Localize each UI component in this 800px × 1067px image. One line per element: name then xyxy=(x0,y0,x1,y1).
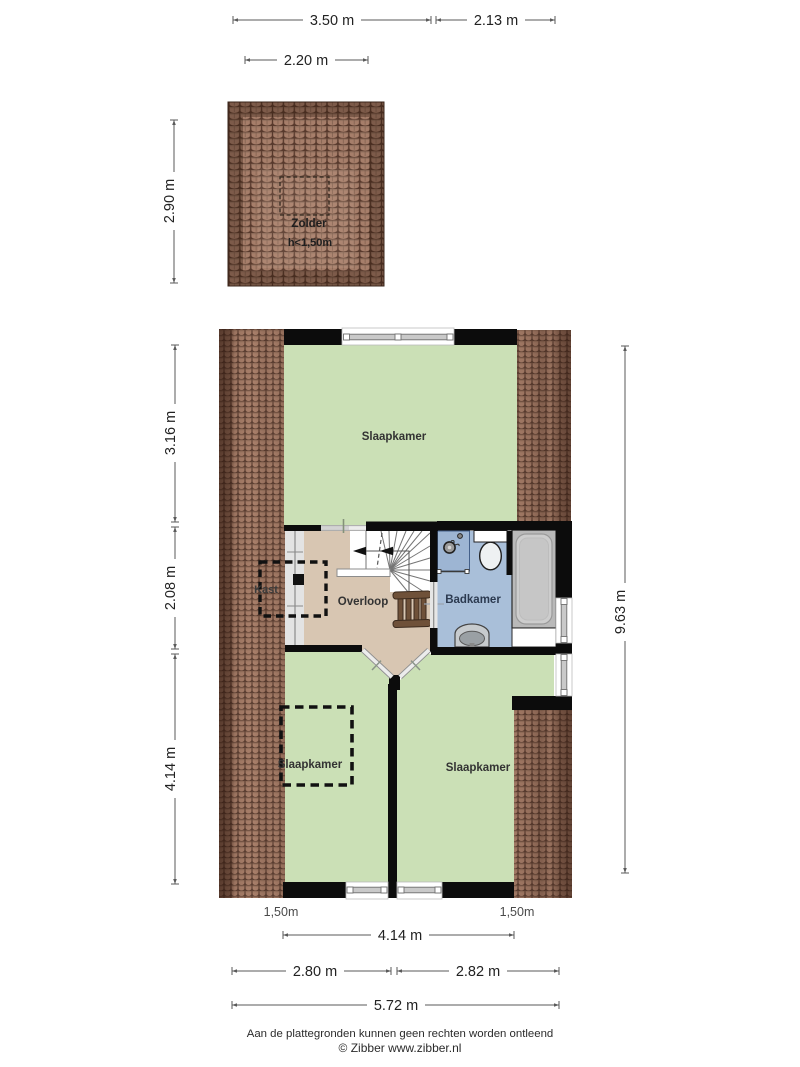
svg-text:5.72 m: 5.72 m xyxy=(374,998,418,1014)
svg-text:1,50m: 1,50m xyxy=(264,905,299,919)
svg-text:3.50 m: 3.50 m xyxy=(310,13,354,29)
svg-text:Overloop: Overloop xyxy=(338,596,388,608)
svg-text:© Zibber www.zibber.nl: © Zibber www.zibber.nl xyxy=(339,1041,462,1055)
svg-text:h<1,50m: h<1,50m xyxy=(288,237,333,249)
svg-text:4.14 m: 4.14 m xyxy=(163,747,179,791)
svg-text:Slaapkamer: Slaapkamer xyxy=(446,762,511,774)
svg-text:2.80 m: 2.80 m xyxy=(293,964,337,980)
svg-text:2.08 m: 2.08 m xyxy=(163,566,179,610)
svg-text:1,50m: 1,50m xyxy=(500,905,535,919)
svg-text:Kast: Kast xyxy=(254,584,278,596)
svg-text:2.82 m: 2.82 m xyxy=(456,964,500,980)
svg-text:3.16 m: 3.16 m xyxy=(163,411,179,455)
svg-text:4.14 m: 4.14 m xyxy=(378,928,422,944)
svg-text:Badkamer: Badkamer xyxy=(445,594,501,606)
svg-text:2.90 m: 2.90 m xyxy=(162,179,178,223)
svg-text:Slaapkamer: Slaapkamer xyxy=(278,759,343,771)
svg-text:Aan de plattegronden kunnen ge: Aan de plattegronden kunnen geen rechten… xyxy=(247,1028,554,1040)
svg-text:Slaapkamer: Slaapkamer xyxy=(362,431,427,443)
svg-text:9.63 m: 9.63 m xyxy=(613,590,629,634)
svg-text:2.13 m: 2.13 m xyxy=(474,13,518,29)
svg-text:Zolder: Zolder xyxy=(291,218,327,230)
svg-text:2.20 m: 2.20 m xyxy=(284,53,328,69)
